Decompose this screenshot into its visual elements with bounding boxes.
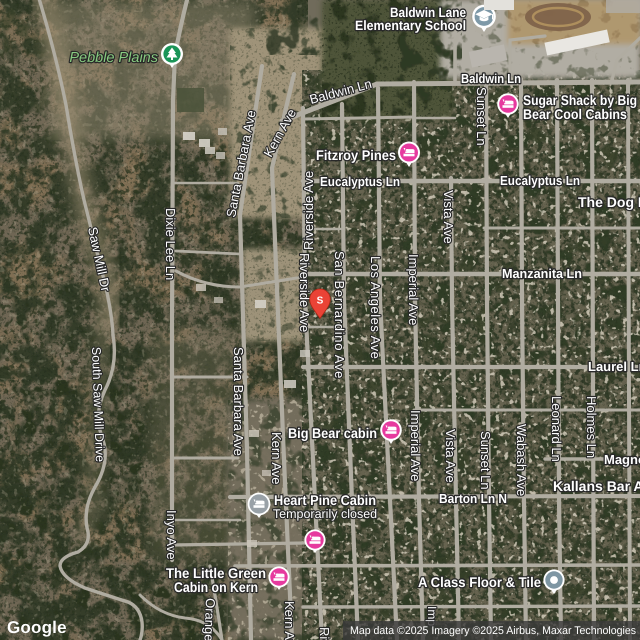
- svg-text:Dixie Lee Ln: Dixie Lee Ln: [163, 208, 178, 280]
- svg-text:A Class Floor & Tile: A Class Floor & Tile: [418, 574, 541, 590]
- svg-text:Magnoli: Magnoli: [604, 452, 640, 467]
- svg-text:Leonard Ln: Leonard Ln: [549, 396, 564, 462]
- svg-text:Los Angeles Ave: Los Angeles Ave: [368, 256, 383, 359]
- svg-text:Kallans Bar And: Kallans Bar And: [553, 478, 640, 494]
- svg-text:Vista Ave: Vista Ave: [441, 190, 456, 244]
- svg-text:Imperial Ave: Imperial Ave: [408, 410, 423, 481]
- svg-text:Cabin on Kern: Cabin on Kern: [174, 579, 258, 595]
- svg-text:The Dog Ho: The Dog Ho: [578, 194, 640, 210]
- svg-text:Santa Barbara Ave: Santa Barbara Ave: [231, 347, 246, 456]
- svg-text:Riverside Ave: Riverside Ave: [297, 253, 312, 332]
- svg-text:Laurel Ln: Laurel Ln: [588, 359, 640, 374]
- svg-text:Pebble Plains: Pebble Plains: [69, 50, 158, 66]
- svg-text:Wabash Ave: Wabash Ave: [514, 424, 529, 496]
- svg-text:Kern Ave: Kern Ave: [269, 432, 284, 485]
- svg-text:S: S: [317, 296, 324, 307]
- svg-text:Riverside Ave: Riverside Ave: [301, 171, 316, 250]
- svg-text:Heart Pine Cabin: Heart Pine Cabin: [274, 492, 376, 508]
- svg-text:Google: Google: [7, 618, 67, 637]
- svg-text:Kern Av: Kern Av: [282, 601, 297, 640]
- svg-text:Big Bear cabin: Big Bear cabin: [288, 425, 377, 441]
- svg-text:Bear Cool Cabins: Bear Cool Cabins: [523, 106, 627, 122]
- svg-text:Eucalyptus Ln: Eucalyptus Ln: [500, 173, 580, 188]
- svg-text:Sunset Ln: Sunset Ln: [474, 87, 489, 146]
- svg-text:Temporarily closed: Temporarily closed: [273, 507, 377, 521]
- svg-text:Riv: Riv: [317, 627, 332, 640]
- svg-text:Map data ©2025 Imagery ©2025 A: Map data ©2025 Imagery ©2025 Airbus, Max…: [350, 625, 636, 637]
- svg-text:Elementary School: Elementary School: [355, 18, 466, 33]
- svg-text:Fitzroy Pines: Fitzroy Pines: [316, 147, 396, 163]
- svg-text:Baldwin Ln: Baldwin Ln: [461, 71, 521, 86]
- svg-text:Manzanita Ln: Manzanita Ln: [502, 266, 582, 281]
- svg-text:Sunset Ln: Sunset Ln: [478, 431, 493, 490]
- svg-text:Inyo Ave: Inyo Ave: [164, 510, 179, 560]
- svg-text:San Bernardino Ave: San Bernardino Ave: [332, 251, 347, 379]
- svg-text:Eucalyptus Ln: Eucalyptus Ln: [320, 174, 400, 189]
- svg-text:Holmes Ln: Holmes Ln: [584, 396, 599, 458]
- svg-text:Imperial Ave: Imperial Ave: [406, 254, 421, 325]
- svg-text:Barton Ln N: Barton Ln N: [439, 491, 507, 506]
- svg-text:Orange Av: Orange Av: [201, 598, 218, 640]
- svg-text:Vista Ave: Vista Ave: [443, 429, 458, 483]
